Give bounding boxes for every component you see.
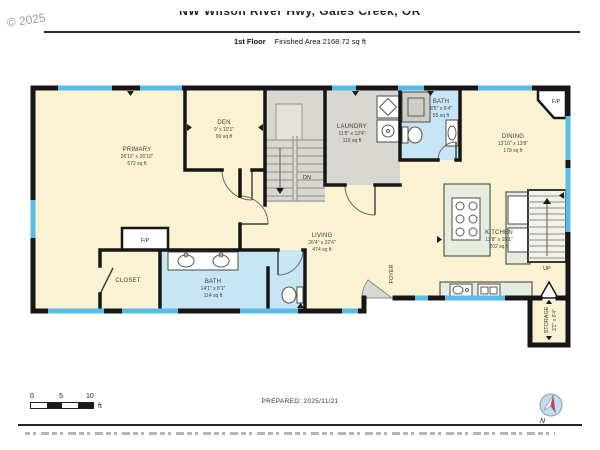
storage-dims: 3'2" x 6'4" [552, 309, 558, 331]
footer-divider [18, 424, 582, 426]
stairs-up-label: UP [543, 266, 551, 272]
storage-name: STORAGE [544, 306, 550, 333]
primary-area: 572 sq ft [127, 161, 147, 167]
disclaimer-text-illegible [25, 432, 555, 435]
closet-label: CLOSET [115, 278, 140, 284]
kitchen-area: 202 sq ft [489, 244, 509, 250]
primary-label: PRIMARY [123, 147, 152, 153]
bath-bottom-dims: 14'1" x 8'1" [201, 286, 226, 292]
floorplan-drawing: PRIMARY 26'11" x 26'10" 572 sq ft DEN 9'… [0, 0, 600, 450]
stove-icon [452, 198, 480, 240]
foyer-label: FOYER [389, 265, 395, 284]
prepared-date: PREPARED: 2025/11/21 [0, 398, 600, 405]
den-area: 90 sq ft [216, 134, 233, 140]
dining-dims: 13'10" x 13'8" [498, 141, 528, 147]
room-bath-top: BATH 8'5" x 6'4" 55 sq ft [430, 99, 452, 119]
bath-top-dims: 8'5" x 6'4" [430, 106, 452, 112]
kitchen-label: KITCHEN [485, 230, 513, 236]
laundry-area: 116 sq ft [343, 138, 362, 144]
staircase-up [528, 190, 566, 262]
shower-icon [402, 92, 430, 122]
stairs-down-label: DN [303, 175, 311, 181]
living-dims: 26'4" x 22'4" [308, 240, 336, 246]
laundry-dims: 11'5" x 12'4" [338, 131, 365, 137]
fridge-icon [508, 196, 528, 224]
bath-top-area: 55 sq ft [433, 113, 450, 119]
compass-icon [538, 392, 564, 418]
fireplace-label: F/P [141, 238, 150, 244]
toilet-icon-bottom [282, 287, 303, 303]
bath-top-label: BATH [433, 99, 449, 105]
bath-bottom-area: 114 sq ft [204, 293, 223, 299]
primary-dims: 26'11" x 26'10" [121, 154, 154, 160]
living-area: 474 sq ft [312, 247, 332, 253]
living-label: LIVING [312, 233, 333, 239]
double-vanity-icon [168, 252, 238, 270]
corner-fireplace-label: F/P [552, 99, 561, 105]
dining-area: 179 sq ft [503, 148, 523, 154]
toilet-icon-top [402, 127, 422, 143]
laundry-label: LAUNDRY [337, 124, 367, 130]
bath-bottom-label: BATH [205, 279, 221, 285]
den-label: DEN [217, 120, 230, 126]
floorplan-page: NW Wilson River Hwy, Gales Creek, OR © 2… [0, 0, 600, 450]
kitchen-sink-icon [450, 284, 472, 297]
dining-label: DINING [502, 134, 524, 140]
kitchen-dims: 13'8" x 15'1" [485, 237, 513, 243]
dishwasher-icon [478, 284, 500, 297]
den-dims: 9' x 10'1" [214, 127, 234, 133]
